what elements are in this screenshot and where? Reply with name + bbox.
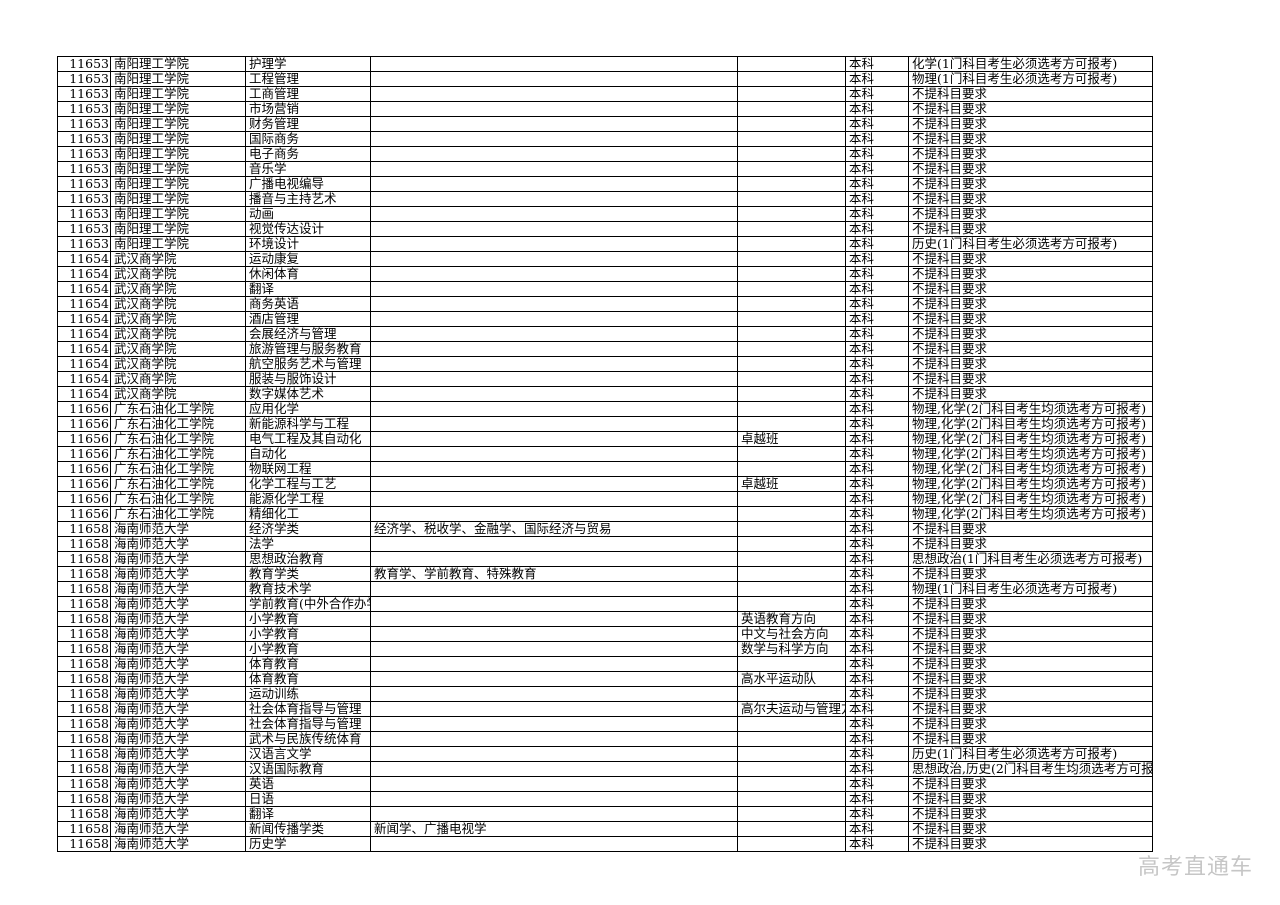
cell-note: 英语教育方向 <box>738 612 846 627</box>
cell-subject_requirement: 不提科目要求 <box>909 342 1153 357</box>
cell-note <box>738 597 846 612</box>
cell-level: 本科 <box>846 672 909 687</box>
cell-included_majors <box>371 162 738 177</box>
cell-major: 翻译 <box>246 807 371 822</box>
cell-level: 本科 <box>846 252 909 267</box>
table-row: 11658海南师范大学思想政治教育本科思想政治(1门科目考生必须选考方可报考) <box>58 552 1153 567</box>
cell-subject_requirement: 不提科目要求 <box>909 822 1153 837</box>
cell-university: 武汉商学院 <box>111 312 246 327</box>
cell-university: 南阳理工学院 <box>111 162 246 177</box>
cell-level: 本科 <box>846 597 909 612</box>
table-row: 11658海南师范大学体育教育本科不提科目要求 <box>58 657 1153 672</box>
cell-level: 本科 <box>846 717 909 732</box>
cell-university: 武汉商学院 <box>111 282 246 297</box>
table-row: 11653南阳理工学院视觉传达设计本科不提科目要求 <box>58 222 1153 237</box>
table-row: 11658海南师范大学法学本科不提科目要求 <box>58 537 1153 552</box>
cell-subject_requirement: 思想政治,历史(2门科目考生均须选考方可报考) <box>909 762 1153 777</box>
cell-included_majors <box>371 147 738 162</box>
cell-subject_requirement: 不提科目要求 <box>909 327 1153 342</box>
cell-major: 汉语言文学 <box>246 747 371 762</box>
cell-note <box>738 72 846 87</box>
cell-subject_requirement: 物理,化学(2门科目考生均须选考方可报考) <box>909 402 1153 417</box>
cell-subject_requirement: 物理,化学(2门科目考生均须选考方可报考) <box>909 507 1153 522</box>
cell-note <box>738 162 846 177</box>
cell-major: 环境设计 <box>246 237 371 252</box>
cell-included_majors <box>371 432 738 447</box>
cell-university: 南阳理工学院 <box>111 72 246 87</box>
cell-included_majors <box>371 267 738 282</box>
table-row: 11658海南师范大学小学教育中文与社会方向本科不提科目要求 <box>58 627 1153 642</box>
cell-note <box>738 747 846 762</box>
cell-university: 南阳理工学院 <box>111 237 246 252</box>
cell-subject_requirement: 不提科目要求 <box>909 837 1153 852</box>
cell-major: 社会体育指导与管理 <box>246 717 371 732</box>
cell-subject_requirement: 不提科目要求 <box>909 297 1153 312</box>
cell-level: 本科 <box>846 162 909 177</box>
cell-included_majors: 教育学、学前教育、特殊教育 <box>371 567 738 582</box>
table-row: 11658海南师范大学小学教育数学与科学方向本科不提科目要求 <box>58 642 1153 657</box>
cell-level: 本科 <box>846 387 909 402</box>
cell-university: 广东石油化工学院 <box>111 507 246 522</box>
cell-subject_requirement: 不提科目要求 <box>909 282 1153 297</box>
cell-code: 11654 <box>58 267 111 282</box>
table-row: 11658海南师范大学经济学类经济学、税收学、金融学、国际经济与贸易本科不提科目… <box>58 522 1153 537</box>
cell-subject_requirement: 不提科目要求 <box>909 567 1153 582</box>
cell-major: 视觉传达设计 <box>246 222 371 237</box>
cell-level: 本科 <box>846 207 909 222</box>
cell-code: 11658 <box>58 747 111 762</box>
cell-major: 新能源科学与工程 <box>246 417 371 432</box>
cell-note <box>738 807 846 822</box>
cell-note: 数学与科学方向 <box>738 642 846 657</box>
table-row: 11658海南师范大学汉语言文学本科历史(1门科目考生必须选考方可报考) <box>58 747 1153 762</box>
cell-subject_requirement: 不提科目要求 <box>909 312 1153 327</box>
cell-major: 工商管理 <box>246 87 371 102</box>
cell-included_majors <box>371 747 738 762</box>
cell-note <box>738 552 846 567</box>
table-row: 11653南阳理工学院音乐学本科不提科目要求 <box>58 162 1153 177</box>
cell-note <box>738 717 846 732</box>
cell-university: 武汉商学院 <box>111 252 246 267</box>
cell-included_majors: 新闻学、广播电视学 <box>371 822 738 837</box>
cell-note <box>738 237 846 252</box>
cell-included_majors <box>371 807 738 822</box>
cell-code: 11658 <box>58 687 111 702</box>
cell-level: 本科 <box>846 87 909 102</box>
table-row: 11658海南师范大学汉语国际教育本科思想政治,历史(2门科目考生均须选考方可报… <box>58 762 1153 777</box>
cell-code: 11653 <box>58 222 111 237</box>
cell-major: 小学教育 <box>246 642 371 657</box>
cell-major: 服装与服饰设计 <box>246 372 371 387</box>
cell-major: 商务英语 <box>246 297 371 312</box>
cell-subject_requirement: 物理,化学(2门科目考生均须选考方可报考) <box>909 492 1153 507</box>
cell-included_majors <box>371 327 738 342</box>
cell-code: 11654 <box>58 372 111 387</box>
cell-note <box>738 222 846 237</box>
cell-university: 南阳理工学院 <box>111 87 246 102</box>
table-row: 11653南阳理工学院财务管理本科不提科目要求 <box>58 117 1153 132</box>
cell-note <box>738 312 846 327</box>
cell-code: 11656 <box>58 507 111 522</box>
table-row: 11654武汉商学院酒店管理本科不提科目要求 <box>58 312 1153 327</box>
cell-university: 海南师范大学 <box>111 552 246 567</box>
cell-major: 武术与民族传统体育 <box>246 732 371 747</box>
cell-code: 11656 <box>58 492 111 507</box>
cell-subject_requirement: 不提科目要求 <box>909 162 1153 177</box>
watermark-text: 高考直通车 <box>1138 849 1253 881</box>
cell-subject_requirement: 不提科目要求 <box>909 627 1153 642</box>
cell-note <box>738 762 846 777</box>
cell-subject_requirement: 不提科目要求 <box>909 792 1153 807</box>
cell-code: 11658 <box>58 762 111 777</box>
table-row: 11653南阳理工学院护理学本科化学(1门科目考生必须选考方可报考) <box>58 57 1153 72</box>
table-row: 11658海南师范大学社会体育指导与管理本科不提科目要求 <box>58 717 1153 732</box>
cell-university: 海南师范大学 <box>111 837 246 852</box>
cell-code: 11653 <box>58 192 111 207</box>
cell-included_majors <box>371 657 738 672</box>
cell-major: 新闻传播学类 <box>246 822 371 837</box>
cell-included_majors <box>371 357 738 372</box>
cell-subject_requirement: 不提科目要求 <box>909 267 1153 282</box>
cell-major: 英语 <box>246 777 371 792</box>
cell-note <box>738 582 846 597</box>
cell-code: 11656 <box>58 477 111 492</box>
table-row: 11653南阳理工学院环境设计本科历史(1门科目考生必须选考方可报考) <box>58 237 1153 252</box>
admissions-table: 11653南阳理工学院护理学本科化学(1门科目考生必须选考方可报考)11653南… <box>57 56 1153 852</box>
cell-major: 工程管理 <box>246 72 371 87</box>
cell-code: 11656 <box>58 462 111 477</box>
cell-note <box>738 57 846 72</box>
cell-university: 海南师范大学 <box>111 687 246 702</box>
cell-included_majors <box>371 447 738 462</box>
cell-code: 11658 <box>58 837 111 852</box>
cell-major: 化学工程与工艺 <box>246 477 371 492</box>
cell-major: 精细化工 <box>246 507 371 522</box>
cell-subject_requirement: 不提科目要求 <box>909 777 1153 792</box>
cell-code: 11658 <box>58 582 111 597</box>
cell-level: 本科 <box>846 567 909 582</box>
cell-major: 社会体育指导与管理 <box>246 702 371 717</box>
cell-university: 海南师范大学 <box>111 672 246 687</box>
cell-level: 本科 <box>846 627 909 642</box>
cell-university: 海南师范大学 <box>111 702 246 717</box>
table-row: 11653南阳理工学院国际商务本科不提科目要求 <box>58 132 1153 147</box>
cell-university: 广东石油化工学院 <box>111 462 246 477</box>
table-row: 11658海南师范大学历史学本科不提科目要求 <box>58 837 1153 852</box>
cell-note <box>738 192 846 207</box>
cell-included_majors <box>371 777 738 792</box>
cell-university: 广东石油化工学院 <box>111 417 246 432</box>
cell-note <box>738 177 846 192</box>
cell-subject_requirement: 不提科目要求 <box>909 252 1153 267</box>
cell-major: 学前教育(中外合作办学) <box>246 597 371 612</box>
cell-included_majors <box>371 597 738 612</box>
table-row: 11654武汉商学院航空服务艺术与管理本科不提科目要求 <box>58 357 1153 372</box>
cell-code: 11653 <box>58 162 111 177</box>
cell-note <box>738 132 846 147</box>
cell-included_majors <box>371 87 738 102</box>
cell-subject_requirement: 不提科目要求 <box>909 357 1153 372</box>
cell-subject_requirement: 不提科目要求 <box>909 717 1153 732</box>
cell-level: 本科 <box>846 747 909 762</box>
cell-note <box>738 147 846 162</box>
cell-code: 11654 <box>58 387 111 402</box>
cell-university: 武汉商学院 <box>111 357 246 372</box>
cell-note <box>738 87 846 102</box>
cell-level: 本科 <box>846 117 909 132</box>
cell-subject_requirement: 不提科目要求 <box>909 192 1153 207</box>
cell-code: 11658 <box>58 627 111 642</box>
cell-level: 本科 <box>846 312 909 327</box>
cell-major: 教育学类 <box>246 567 371 582</box>
cell-subject_requirement: 不提科目要求 <box>909 147 1153 162</box>
cell-included_majors <box>371 222 738 237</box>
cell-note <box>738 492 846 507</box>
cell-major: 历史学 <box>246 837 371 852</box>
cell-major: 播音与主持艺术 <box>246 192 371 207</box>
table-row: 11656广东石油化工学院能源化学工程本科物理,化学(2门科目考生均须选考方可报… <box>58 492 1153 507</box>
cell-major: 日语 <box>246 792 371 807</box>
cell-code: 11656 <box>58 432 111 447</box>
cell-university: 武汉商学院 <box>111 387 246 402</box>
cell-included_majors <box>371 102 738 117</box>
cell-code: 11658 <box>58 717 111 732</box>
cell-subject_requirement: 不提科目要求 <box>909 522 1153 537</box>
cell-major: 电子商务 <box>246 147 371 162</box>
cell-level: 本科 <box>846 282 909 297</box>
table-row: 11653南阳理工学院工程管理本科物理(1门科目考生必须选考方可报考) <box>58 72 1153 87</box>
cell-university: 广东石油化工学院 <box>111 492 246 507</box>
table-row: 11654武汉商学院休闲体育本科不提科目要求 <box>58 267 1153 282</box>
cell-code: 11658 <box>58 792 111 807</box>
cell-major: 体育教育 <box>246 657 371 672</box>
cell-level: 本科 <box>846 522 909 537</box>
cell-university: 海南师范大学 <box>111 822 246 837</box>
table-row: 11656广东石油化工学院物联网工程本科物理,化学(2门科目考生均须选考方可报考… <box>58 462 1153 477</box>
cell-university: 海南师范大学 <box>111 567 246 582</box>
cell-included_majors <box>371 672 738 687</box>
cell-university: 海南师范大学 <box>111 627 246 642</box>
cell-code: 11658 <box>58 612 111 627</box>
cell-university: 海南师范大学 <box>111 582 246 597</box>
cell-major: 小学教育 <box>246 612 371 627</box>
cell-university: 海南师范大学 <box>111 597 246 612</box>
cell-included_majors <box>371 402 738 417</box>
cell-university: 南阳理工学院 <box>111 102 246 117</box>
cell-code: 11658 <box>58 657 111 672</box>
cell-level: 本科 <box>846 432 909 447</box>
table-row: 11654武汉商学院商务英语本科不提科目要求 <box>58 297 1153 312</box>
cell-level: 本科 <box>846 762 909 777</box>
cell-note <box>738 117 846 132</box>
cell-level: 本科 <box>846 402 909 417</box>
cell-university: 南阳理工学院 <box>111 57 246 72</box>
cell-major: 思想政治教育 <box>246 552 371 567</box>
cell-level: 本科 <box>846 417 909 432</box>
table-row: 11658海南师范大学日语本科不提科目要求 <box>58 792 1153 807</box>
table-row: 11653南阳理工学院播音与主持艺术本科不提科目要求 <box>58 192 1153 207</box>
cell-code: 11653 <box>58 177 111 192</box>
cell-major: 翻译 <box>246 282 371 297</box>
cell-major: 应用化学 <box>246 402 371 417</box>
cell-code: 11653 <box>58 57 111 72</box>
cell-university: 南阳理工学院 <box>111 117 246 132</box>
cell-note <box>738 417 846 432</box>
cell-level: 本科 <box>846 537 909 552</box>
cell-code: 11658 <box>58 537 111 552</box>
cell-note: 高尔夫运动与管理方向 <box>738 702 846 717</box>
table-row: 11653南阳理工学院动画本科不提科目要求 <box>58 207 1153 222</box>
cell-university: 广东石油化工学院 <box>111 402 246 417</box>
cell-included_majors <box>371 762 738 777</box>
cell-subject_requirement: 历史(1门科目考生必须选考方可报考) <box>909 747 1153 762</box>
cell-university: 南阳理工学院 <box>111 147 246 162</box>
cell-level: 本科 <box>846 237 909 252</box>
cell-included_majors <box>371 492 738 507</box>
cell-major: 旅游管理与服务教育 <box>246 342 371 357</box>
cell-level: 本科 <box>846 327 909 342</box>
cell-code: 11658 <box>58 522 111 537</box>
cell-note: 高水平运动队 <box>738 672 846 687</box>
table-row: 11658海南师范大学社会体育指导与管理高尔夫运动与管理方向本科不提科目要求 <box>58 702 1153 717</box>
cell-university: 海南师范大学 <box>111 762 246 777</box>
cell-university: 武汉商学院 <box>111 342 246 357</box>
cell-major: 汉语国际教育 <box>246 762 371 777</box>
cell-subject_requirement: 不提科目要求 <box>909 807 1153 822</box>
cell-level: 本科 <box>846 837 909 852</box>
cell-included_majors <box>371 132 738 147</box>
cell-major: 法学 <box>246 537 371 552</box>
cell-code: 11654 <box>58 297 111 312</box>
cell-major: 教育技术学 <box>246 582 371 597</box>
cell-major: 数字媒体艺术 <box>246 387 371 402</box>
cell-subject_requirement: 不提科目要求 <box>909 702 1153 717</box>
cell-code: 11658 <box>58 567 111 582</box>
cell-major: 音乐学 <box>246 162 371 177</box>
cell-note <box>738 822 846 837</box>
cell-code: 11658 <box>58 822 111 837</box>
cell-major: 物联网工程 <box>246 462 371 477</box>
cell-code: 11658 <box>58 672 111 687</box>
cell-major: 酒店管理 <box>246 312 371 327</box>
cell-note <box>738 267 846 282</box>
cell-code: 11654 <box>58 327 111 342</box>
cell-subject_requirement: 不提科目要求 <box>909 612 1153 627</box>
cell-included_majors <box>371 627 738 642</box>
cell-level: 本科 <box>846 222 909 237</box>
cell-level: 本科 <box>846 57 909 72</box>
cell-major: 广播电视编导 <box>246 177 371 192</box>
cell-level: 本科 <box>846 807 909 822</box>
table-row: 11656广东石油化工学院自动化本科物理,化学(2门科目考生均须选考方可报考) <box>58 447 1153 462</box>
cell-included_majors <box>371 252 738 267</box>
table-row: 11658海南师范大学运动训练本科不提科目要求 <box>58 687 1153 702</box>
cell-university: 武汉商学院 <box>111 297 246 312</box>
cell-level: 本科 <box>846 102 909 117</box>
cell-included_majors <box>371 702 738 717</box>
cell-included_majors <box>371 717 738 732</box>
table-row: 11654武汉商学院旅游管理与服务教育本科不提科目要求 <box>58 342 1153 357</box>
cell-included_majors <box>371 372 738 387</box>
cell-included_majors <box>371 387 738 402</box>
cell-code: 11653 <box>58 207 111 222</box>
cell-code: 11658 <box>58 552 111 567</box>
cell-subject_requirement: 物理,化学(2门科目考生均须选考方可报考) <box>909 432 1153 447</box>
cell-university: 海南师范大学 <box>111 642 246 657</box>
cell-included_majors <box>371 642 738 657</box>
cell-university: 海南师范大学 <box>111 522 246 537</box>
cell-note <box>738 447 846 462</box>
cell-subject_requirement: 物理,化学(2门科目考生均须选考方可报考) <box>909 462 1153 477</box>
cell-university: 海南师范大学 <box>111 717 246 732</box>
cell-included_majors <box>371 612 738 627</box>
cell-code: 11654 <box>58 342 111 357</box>
cell-note <box>738 657 846 672</box>
cell-included_majors <box>371 552 738 567</box>
cell-included_majors <box>371 72 738 87</box>
table-row: 11654武汉商学院会展经济与管理本科不提科目要求 <box>58 327 1153 342</box>
cell-major: 运动康复 <box>246 252 371 267</box>
cell-note: 中文与社会方向 <box>738 627 846 642</box>
table-row: 11658海南师范大学教育学类教育学、学前教育、特殊教育本科不提科目要求 <box>58 567 1153 582</box>
cell-major: 会展经济与管理 <box>246 327 371 342</box>
cell-major: 动画 <box>246 207 371 222</box>
cell-subject_requirement: 物理,化学(2门科目考生均须选考方可报考) <box>909 447 1153 462</box>
cell-university: 广东石油化工学院 <box>111 447 246 462</box>
table-row: 11656广东石油化工学院应用化学本科物理,化学(2门科目考生均须选考方可报考) <box>58 402 1153 417</box>
cell-subject_requirement: 物理(1门科目考生必须选考方可报考) <box>909 72 1153 87</box>
cell-note <box>738 282 846 297</box>
table-row: 11658海南师范大学英语本科不提科目要求 <box>58 777 1153 792</box>
table-row: 11658海南师范大学学前教育(中外合作办学)本科不提科目要求 <box>58 597 1153 612</box>
cell-included_majors <box>371 792 738 807</box>
cell-note <box>738 732 846 747</box>
cell-note <box>738 327 846 342</box>
cell-note <box>738 297 846 312</box>
table-row: 11658海南师范大学武术与民族传统体育本科不提科目要求 <box>58 732 1153 747</box>
cell-subject_requirement: 不提科目要求 <box>909 87 1153 102</box>
cell-subject_requirement: 不提科目要求 <box>909 642 1153 657</box>
cell-code: 11658 <box>58 597 111 612</box>
cell-level: 本科 <box>846 342 909 357</box>
cell-note <box>738 462 846 477</box>
cell-included_majors <box>371 237 738 252</box>
cell-university: 海南师范大学 <box>111 612 246 627</box>
cell-code: 11658 <box>58 642 111 657</box>
cell-note <box>738 207 846 222</box>
cell-included_majors <box>371 732 738 747</box>
cell-level: 本科 <box>846 492 909 507</box>
cell-major: 体育教育 <box>246 672 371 687</box>
cell-major: 电气工程及其自动化 <box>246 432 371 447</box>
cell-subject_requirement: 化学(1门科目考生必须选考方可报考) <box>909 57 1153 72</box>
cell-code: 11654 <box>58 312 111 327</box>
cell-subject_requirement: 不提科目要求 <box>909 732 1153 747</box>
table-row: 11658海南师范大学翻译本科不提科目要求 <box>58 807 1153 822</box>
table-row: 11654武汉商学院服装与服饰设计本科不提科目要求 <box>58 372 1153 387</box>
cell-subject_requirement: 不提科目要求 <box>909 102 1153 117</box>
cell-code: 11656 <box>58 447 111 462</box>
cell-university: 海南师范大学 <box>111 732 246 747</box>
cell-subject_requirement: 不提科目要求 <box>909 132 1153 147</box>
cell-level: 本科 <box>846 702 909 717</box>
cell-subject_requirement: 不提科目要求 <box>909 657 1153 672</box>
table-row: 11656广东石油化工学院化学工程与工艺卓越班本科物理,化学(2门科目考生均须选… <box>58 477 1153 492</box>
cell-university: 海南师范大学 <box>111 657 246 672</box>
cell-code: 11653 <box>58 237 111 252</box>
cell-subject_requirement: 不提科目要求 <box>909 537 1153 552</box>
cell-code: 11653 <box>58 102 111 117</box>
